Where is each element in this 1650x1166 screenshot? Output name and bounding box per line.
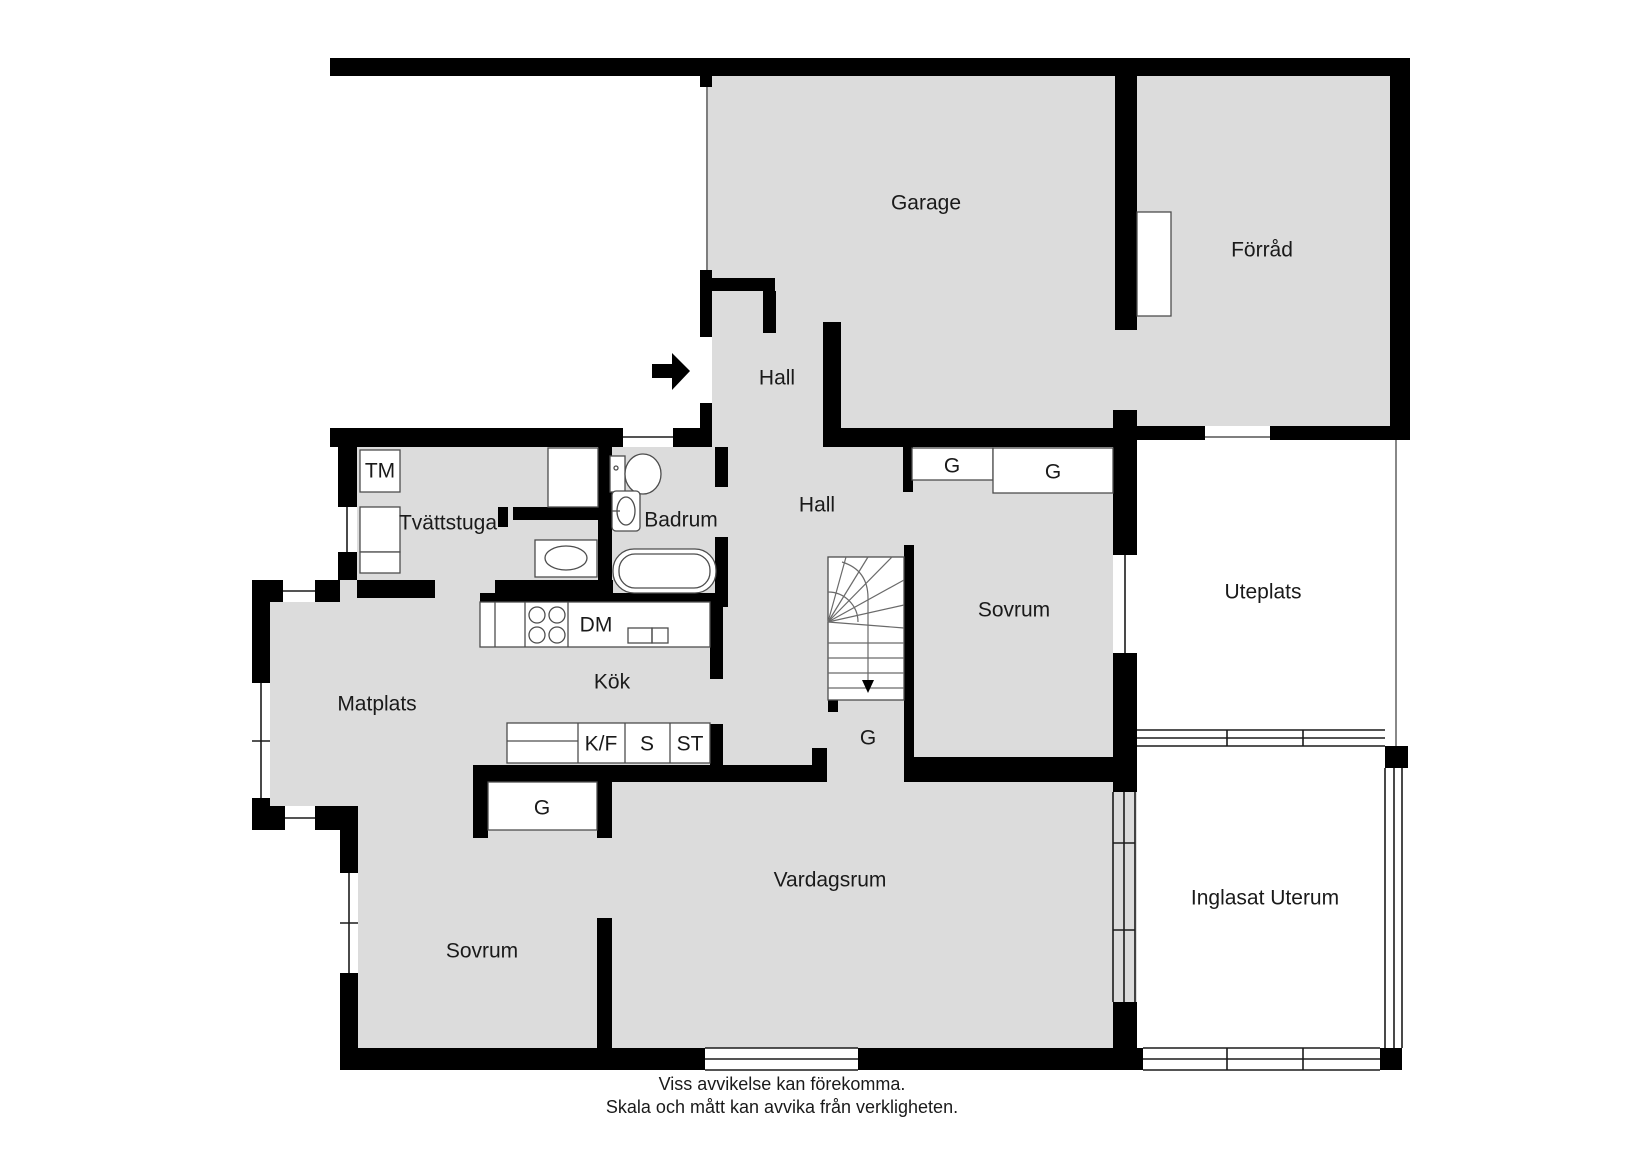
wall bbox=[904, 757, 1113, 782]
wall bbox=[812, 748, 827, 765]
wall bbox=[338, 552, 357, 580]
wall bbox=[1115, 76, 1137, 330]
wall bbox=[700, 76, 712, 87]
wall bbox=[673, 428, 712, 447]
room-label-vardagsrum: Vardagsrum bbox=[774, 869, 887, 892]
wall bbox=[495, 580, 613, 598]
wall bbox=[498, 507, 508, 527]
fixture-label-s: S bbox=[640, 733, 654, 756]
cabinet bbox=[360, 552, 400, 573]
wall bbox=[597, 918, 612, 1048]
wall bbox=[330, 58, 1410, 76]
wall bbox=[340, 830, 358, 873]
door-leaf bbox=[1137, 212, 1171, 316]
wall bbox=[1135, 426, 1205, 440]
wall bbox=[700, 270, 712, 337]
room-label-kok: Kök bbox=[594, 671, 631, 694]
wall bbox=[340, 1048, 705, 1070]
wall bbox=[1270, 426, 1410, 440]
door-opening bbox=[1205, 426, 1270, 440]
floor-plan-page: Garage Förråd Hall Hall Tvättstuga Badru… bbox=[0, 0, 1650, 1166]
room-label-sovrum-left: Sovrum bbox=[446, 940, 518, 963]
wall bbox=[1385, 746, 1408, 768]
wall bbox=[710, 724, 723, 765]
wall bbox=[715, 537, 728, 607]
staircase bbox=[828, 557, 904, 700]
wall bbox=[252, 580, 283, 602]
wall bbox=[315, 806, 358, 830]
wall bbox=[597, 782, 612, 838]
room-label-badrum: Badrum bbox=[644, 509, 718, 532]
exterior-notch bbox=[270, 428, 338, 580]
closet-label-g: G bbox=[944, 455, 960, 478]
room-label-tvattstuga: Tvättstuga bbox=[399, 512, 497, 535]
room-label-inglasat-uterum: Inglasat Uterum bbox=[1191, 887, 1339, 910]
wall bbox=[473, 765, 488, 838]
wall bbox=[700, 403, 712, 428]
wall bbox=[712, 278, 775, 291]
cabinet bbox=[360, 507, 400, 552]
wall bbox=[357, 580, 435, 598]
wall bbox=[1113, 445, 1137, 555]
wall bbox=[338, 428, 357, 507]
wall bbox=[473, 765, 827, 782]
room-label-garage: Garage bbox=[891, 192, 961, 215]
outdoor-areas bbox=[1137, 438, 1396, 1048]
wall bbox=[315, 580, 340, 602]
room-label-matplats: Matplats bbox=[337, 693, 416, 716]
wall bbox=[1390, 58, 1410, 438]
wall bbox=[1380, 1048, 1402, 1070]
wall bbox=[904, 545, 914, 757]
cabinet bbox=[548, 448, 598, 507]
wall bbox=[330, 428, 623, 447]
wall bbox=[1113, 410, 1137, 447]
wall bbox=[710, 607, 723, 679]
room-label-uteplats: Uteplats bbox=[1224, 581, 1301, 604]
staircase bbox=[828, 557, 904, 700]
wall bbox=[858, 1048, 1143, 1070]
room-label-hall-lower: Hall bbox=[799, 494, 835, 517]
entrance-door-opening bbox=[700, 337, 712, 403]
wall bbox=[828, 700, 838, 712]
wall bbox=[823, 428, 1115, 447]
fixture-label-tm: TM bbox=[365, 460, 395, 483]
fixture-label-kf: K/F bbox=[585, 733, 618, 756]
wall bbox=[1113, 653, 1137, 792]
closet-label-g: G bbox=[534, 797, 550, 820]
closet-label-g: G bbox=[860, 727, 876, 750]
wall bbox=[252, 602, 270, 683]
toilet-icon bbox=[610, 456, 625, 492]
fixture-label-st: ST bbox=[677, 733, 704, 756]
wall bbox=[1113, 1002, 1137, 1052]
wall bbox=[252, 806, 285, 830]
toilet-icon bbox=[625, 454, 661, 494]
room-label-sovrum-right: Sovrum bbox=[978, 599, 1050, 622]
wall bbox=[715, 447, 728, 487]
wall bbox=[763, 291, 776, 333]
entrance-arrow-icon bbox=[652, 353, 690, 390]
room-label-forrad: Förråd bbox=[1231, 239, 1293, 262]
disclaimer-line-1: Viss avvikelse kan förekomma. bbox=[659, 1074, 906, 1094]
fixture-label-dm: DM bbox=[580, 614, 613, 637]
disclaimer-line-2: Skala och mått kan avvika från verklighe… bbox=[606, 1097, 958, 1117]
exterior-notch bbox=[270, 830, 340, 1070]
room-label-hall-upper: Hall bbox=[759, 367, 795, 390]
closet-label-g: G bbox=[1045, 461, 1061, 484]
floor-plan: Garage Förråd Hall Hall Tvättstuga Badru… bbox=[0, 0, 1650, 1166]
